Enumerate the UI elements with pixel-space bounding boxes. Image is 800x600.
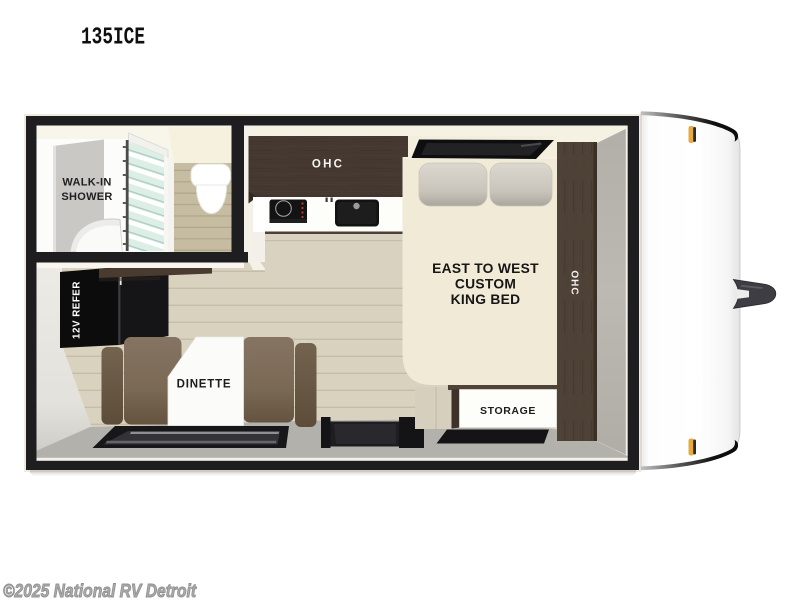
svg-text:KING BED: KING BED <box>451 292 521 307</box>
svg-text:WALK-IN: WALK-IN <box>62 177 111 189</box>
svg-text:DINETTE: DINETTE <box>177 379 232 391</box>
svg-text:CUSTOM: CUSTOM <box>455 277 516 292</box>
svg-text:OHC: OHC <box>312 159 344 171</box>
svg-text:135ICE: 135ICE <box>81 25 145 52</box>
svg-text:EAST TO WEST: EAST TO WEST <box>432 261 539 276</box>
svg-text:OHC: OHC <box>568 270 579 295</box>
svg-text:STORAGE: STORAGE <box>480 405 536 417</box>
svg-text:12V REFER: 12V REFER <box>72 281 83 339</box>
svg-text:SHOWER: SHOWER <box>61 191 112 203</box>
